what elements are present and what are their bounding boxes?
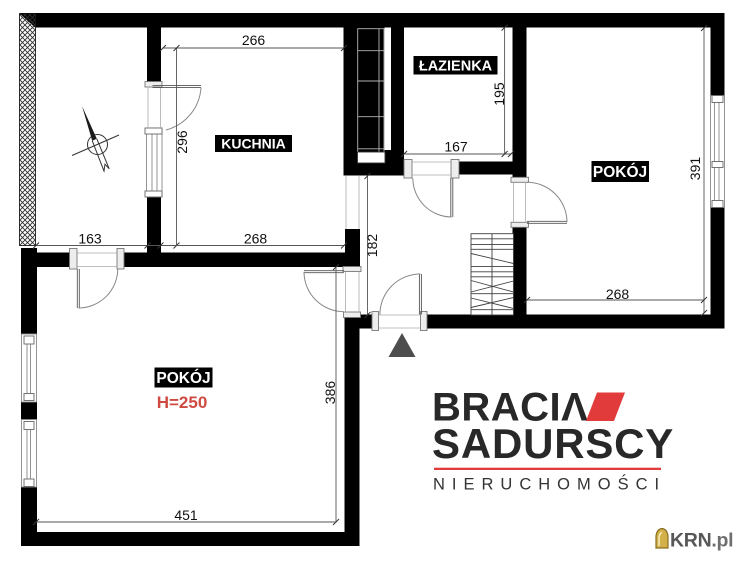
svg-text:167: 167 — [444, 139, 468, 155]
svg-text:268: 268 — [244, 231, 268, 247]
svg-text:451: 451 — [174, 507, 198, 523]
svg-text:SADURSCY: SADURSCY — [432, 420, 674, 467]
svg-text:391: 391 — [687, 157, 703, 181]
svg-text:POKÓJ: POKÓJ — [593, 163, 647, 181]
svg-text:H=250: H=250 — [157, 393, 208, 412]
svg-text:KRN.pl: KRN.pl — [670, 530, 733, 552]
svg-text:163: 163 — [78, 231, 102, 247]
svg-text:266: 266 — [242, 32, 266, 48]
svg-text:ŁAZIENKA: ŁAZIENKA — [419, 59, 493, 75]
svg-text:NIERUCHOMOŚCI: NIERUCHOMOŚCI — [433, 475, 666, 494]
svg-text:268: 268 — [606, 286, 630, 302]
svg-text:KUCHNIA: KUCHNIA — [221, 136, 286, 152]
svg-text:386: 386 — [322, 381, 338, 405]
svg-text:182: 182 — [364, 234, 380, 258]
svg-text:195: 195 — [491, 82, 507, 106]
svg-text:POKÓJ: POKÓJ — [156, 369, 210, 387]
svg-text:296: 296 — [174, 130, 190, 154]
